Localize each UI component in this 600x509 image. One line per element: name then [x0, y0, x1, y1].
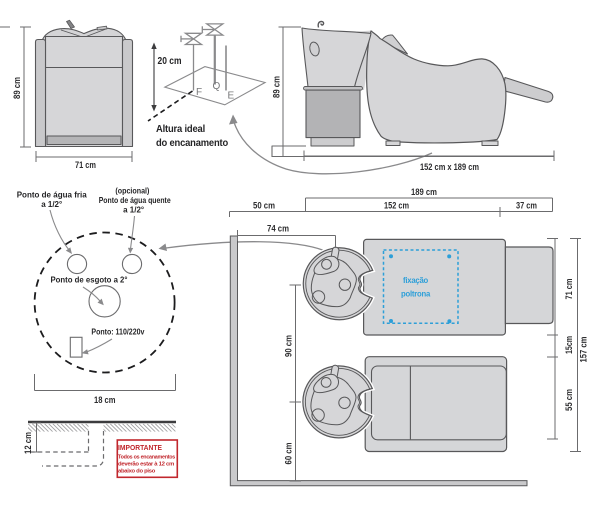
svg-text:55 cm: 55 cm: [564, 389, 574, 411]
svg-text:71 cm: 71 cm: [75, 160, 96, 170]
svg-text:Todos os encanamentos: Todos os encanamentos: [118, 454, 175, 460]
svg-text:89 cm: 89 cm: [12, 77, 22, 99]
svg-text:Altura ideal: Altura ideal: [156, 123, 205, 135]
svg-text:189 cm: 189 cm: [411, 187, 437, 197]
svg-text:157 cm: 157 cm: [579, 337, 589, 363]
svg-text:fixação: fixação: [403, 276, 428, 285]
svg-text:F: F: [196, 87, 202, 98]
svg-text:Ponto de esgoto a 2°: Ponto de esgoto a 2°: [51, 276, 128, 285]
svg-text:15cm: 15cm: [564, 336, 574, 354]
svg-text:a 1/2°: a 1/2°: [123, 206, 144, 215]
svg-text:(opcional): (opcional): [115, 187, 149, 196]
svg-text:12 cm: 12 cm: [23, 432, 33, 454]
svg-text:Ponto de água quente: Ponto de água quente: [99, 196, 171, 205]
svg-text:abaixo do piso: abaixo do piso: [118, 468, 155, 474]
svg-text:89 cm: 89 cm: [272, 76, 282, 98]
svg-text:E: E: [228, 91, 235, 102]
svg-text:37 cm: 37 cm: [516, 201, 537, 211]
svg-text:152 cm: 152 cm: [384, 201, 409, 211]
svg-text:71 cm: 71 cm: [564, 279, 574, 300]
svg-text:20 cm: 20 cm: [158, 55, 182, 67]
svg-text:deverão estar à 12 cm: deverão estar à 12 cm: [118, 461, 175, 467]
svg-text:90 cm: 90 cm: [284, 335, 294, 357]
svg-text:60 cm: 60 cm: [284, 443, 294, 465]
svg-text:152 cm x 189 cm: 152 cm x 189 cm: [420, 162, 479, 172]
svg-text:74 cm: 74 cm: [267, 224, 289, 234]
svg-text:50 cm: 50 cm: [253, 201, 275, 211]
svg-text:Ponto: 110/220v: Ponto: 110/220v: [91, 328, 144, 337]
svg-text:do encanamento: do encanamento: [156, 137, 228, 149]
svg-text:poltrona: poltrona: [401, 290, 431, 299]
svg-text:Q: Q: [213, 81, 221, 92]
svg-text:18 cm: 18 cm: [94, 395, 116, 405]
svg-text:a 1/2°: a 1/2°: [41, 200, 62, 209]
svg-text:IMPORTANTE: IMPORTANTE: [118, 443, 162, 452]
svg-text:Ponto de água fria: Ponto de água fria: [17, 191, 87, 200]
